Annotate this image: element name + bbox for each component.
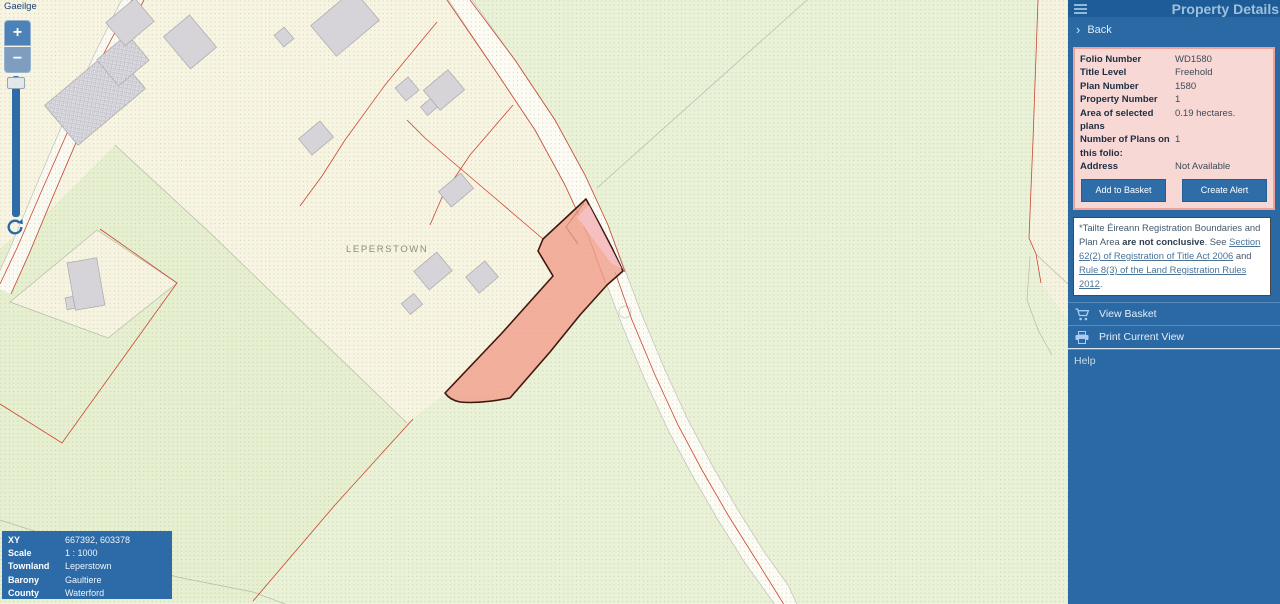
info-row-county: County Waterford [8,587,166,600]
zoom-slider-track[interactable] [12,76,20,217]
sidebar-header: Property Details [1068,0,1280,17]
basket-icon [1074,308,1090,321]
refresh-icon[interactable] [6,218,24,236]
sidebar-menu: View Basket Print Current View Help [1068,302,1280,372]
language-toggle-link[interactable]: Gaeilge [4,1,37,12]
menu-icon[interactable] [1074,4,1087,14]
add-to-basket-button[interactable]: Add to Basket [1081,179,1166,202]
map-canvas: LEPERSTOWN [0,0,1068,604]
print-current-view-button[interactable]: Print Current View [1068,325,1280,348]
chevron-right-icon: › [1076,25,1080,35]
print-label: Print Current View [1099,331,1184,343]
back-label: Back [1087,24,1111,36]
info-row-xy: XY 667392, 603378 [8,534,166,547]
detail-row-folio: Folio Number WD1580 [1080,53,1268,66]
help-label: Help [1074,355,1096,367]
land-registry-app: LEPERSTOWN Gaeilge + − XY 667392, 603378… [0,0,1280,604]
info-row-scale: Scale 1 : 1000 [8,547,166,560]
printer-icon [1074,331,1090,344]
detail-row-plan-number: Plan Number 1580 [1080,80,1268,93]
info-row-townland: Townland Leperstown [8,560,166,573]
back-button[interactable]: › Back [1068,17,1280,42]
townland-map-label: LEPERSTOWN [346,244,428,255]
map-info-box: XY 667392, 603378 Scale 1 : 1000 Townlan… [2,531,172,599]
detail-row-property-number: Property Number 1 [1080,93,1268,106]
disclaimer-note: *Tailte Éireann Registration Boundaries … [1073,217,1271,297]
detail-row-title-level: Title Level Freehold [1080,66,1268,79]
help-link[interactable]: Help [1068,349,1280,372]
zoom-in-button[interactable]: + [4,20,31,46]
property-details-panel: Folio Number WD1580 Title Level Freehold… [1073,47,1275,210]
property-details-sidebar: Property Details › Back Folio Number WD1… [1068,0,1280,604]
map-viewport[interactable]: LEPERSTOWN Gaeilge + − XY 667392, 603378… [0,0,1068,604]
create-alert-button[interactable]: Create Alert [1182,179,1267,202]
sidebar-title: Property Details [1087,1,1280,17]
zoom-out-button[interactable]: − [4,47,31,73]
detail-row-plan-count: Number of Plans on this folio: 1 [1080,133,1268,160]
view-basket-button[interactable]: View Basket [1068,302,1280,325]
detail-row-area: Area of selected plans 0.19 hectares. [1080,107,1268,134]
view-basket-label: View Basket [1099,308,1157,320]
panel-button-row: Add to Basket Create Alert [1080,179,1268,202]
zoom-slider-handle[interactable] [7,77,25,89]
detail-row-address: Address Not Available [1080,160,1268,173]
info-row-barony: Barony Gaultiere [8,574,166,587]
rule-8-link[interactable]: Rule 8(3) of the Land Registration Rules… [1079,264,1246,289]
